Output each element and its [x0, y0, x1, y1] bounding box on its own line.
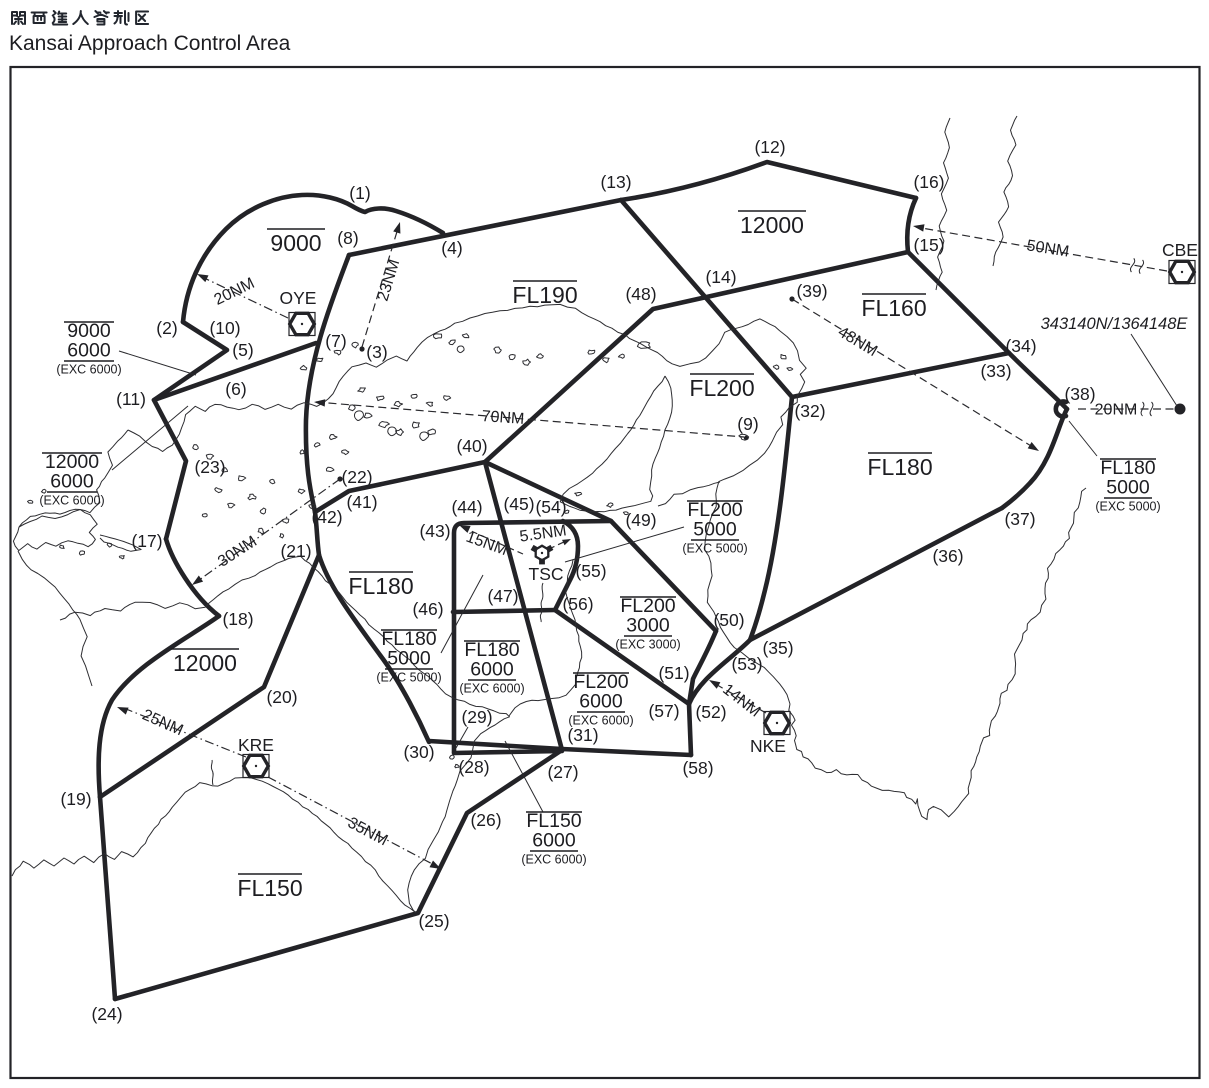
- svg-text:(57): (57): [648, 701, 679, 721]
- svg-text:20NM: 20NM: [1095, 402, 1138, 419]
- svg-text:(2): (2): [156, 318, 177, 338]
- svg-text:(32): (32): [794, 401, 825, 421]
- svg-text:(30): (30): [403, 742, 434, 762]
- svg-text:(28): (28): [458, 757, 489, 777]
- svg-text:Kansai Approach Control Area: Kansai Approach Control Area: [9, 32, 291, 55]
- svg-text:(5): (5): [232, 340, 253, 360]
- svg-text:(13): (13): [600, 172, 631, 192]
- svg-text:(56): (56): [562, 594, 593, 614]
- svg-text:(44): (44): [451, 497, 482, 517]
- svg-text:(11): (11): [116, 389, 146, 409]
- svg-text:(16): (16): [913, 172, 944, 192]
- svg-text:(50): (50): [713, 610, 744, 630]
- svg-text:(58): (58): [682, 758, 713, 778]
- svg-text:(52): (52): [695, 702, 726, 722]
- svg-text:70NM: 70NM: [481, 408, 525, 428]
- svg-text:(7): (7): [325, 331, 346, 351]
- svg-text:(14): (14): [705, 267, 736, 287]
- svg-text:(19): (19): [60, 789, 91, 809]
- svg-text:(43): (43): [419, 521, 450, 541]
- svg-text:(EXC 6000): (EXC 6000): [521, 853, 586, 867]
- svg-text:(9): (9): [737, 414, 758, 434]
- svg-text:6000: 6000: [67, 340, 111, 362]
- svg-text:(24): (24): [91, 1004, 122, 1024]
- svg-text:(12): (12): [754, 137, 785, 157]
- svg-text:6000: 6000: [50, 471, 94, 493]
- svg-text:(EXC 6000): (EXC 6000): [568, 714, 633, 728]
- svg-text:FL160: FL160: [861, 295, 926, 321]
- svg-text:(23): (23): [194, 457, 225, 477]
- svg-text:(55): (55): [575, 561, 606, 581]
- svg-text:3000: 3000: [626, 615, 670, 637]
- svg-text:(37): (37): [1004, 509, 1035, 529]
- svg-text:343140N/1364148E: 343140N/1364148E: [1041, 315, 1189, 333]
- svg-text:(39): (39): [796, 281, 827, 301]
- svg-text:(54): (54): [535, 497, 566, 517]
- svg-text:(22): (22): [341, 467, 372, 487]
- svg-text:(33): (33): [980, 361, 1011, 381]
- svg-text:(4): (4): [441, 238, 462, 258]
- svg-text:FL180: FL180: [867, 454, 932, 480]
- svg-text:(EXC 5000): (EXC 5000): [682, 542, 747, 556]
- svg-text:12000: 12000: [740, 212, 804, 238]
- svg-text:(27): (27): [547, 762, 578, 782]
- svg-text:5000: 5000: [387, 648, 431, 670]
- svg-text:(EXC 6000): (EXC 6000): [459, 682, 524, 696]
- svg-text:(EXC 5000): (EXC 5000): [376, 671, 441, 685]
- svg-text:9000: 9000: [270, 230, 321, 256]
- svg-text:(26): (26): [470, 810, 501, 830]
- svg-text:(51): (51): [658, 663, 689, 683]
- svg-text:(18): (18): [222, 609, 253, 629]
- svg-text:(34): (34): [1005, 336, 1036, 356]
- svg-text:6000: 6000: [470, 659, 514, 681]
- svg-text:5000: 5000: [693, 519, 737, 541]
- svg-text:FL190: FL190: [512, 282, 577, 308]
- svg-text:(36): (36): [932, 546, 963, 566]
- svg-text:(15): (15): [913, 235, 944, 255]
- svg-text:CBE: CBE: [1162, 240, 1198, 260]
- svg-text:(45): (45): [503, 494, 534, 514]
- svg-text:FL150: FL150: [237, 875, 302, 901]
- svg-text:(EXC 6000): (EXC 6000): [39, 494, 104, 508]
- svg-text:(42): (42): [311, 507, 342, 527]
- svg-text:(21): (21): [280, 541, 311, 561]
- svg-text:5000: 5000: [1106, 477, 1150, 499]
- svg-text:6000: 6000: [532, 830, 576, 852]
- svg-text:(25): (25): [418, 911, 449, 931]
- svg-text:(48): (48): [625, 284, 656, 304]
- svg-text:(20): (20): [266, 687, 297, 707]
- svg-text:(46): (46): [412, 599, 443, 619]
- svg-text:(29): (29): [461, 707, 492, 727]
- svg-text:(17): (17): [131, 531, 162, 551]
- svg-text:(31): (31): [567, 725, 598, 745]
- svg-text:6000: 6000: [579, 691, 623, 713]
- svg-text:OYE: OYE: [280, 288, 317, 308]
- svg-text:12000: 12000: [173, 650, 237, 676]
- svg-text:(35): (35): [762, 638, 793, 658]
- svg-text:(40): (40): [456, 436, 487, 456]
- svg-text:(47): (47): [487, 586, 518, 606]
- svg-text:(1): (1): [349, 183, 370, 203]
- svg-text:(EXC 3000): (EXC 3000): [615, 638, 680, 652]
- svg-text:(41): (41): [346, 492, 377, 512]
- svg-text:(38): (38): [1064, 384, 1095, 404]
- svg-text:(3): (3): [366, 342, 387, 362]
- svg-text:(10): (10): [209, 318, 240, 338]
- svg-text:(EXC 6000): (EXC 6000): [56, 363, 121, 377]
- svg-text:(6): (6): [225, 379, 246, 399]
- svg-text:(49): (49): [625, 510, 656, 530]
- svg-text:(53): (53): [731, 654, 762, 674]
- svg-text:(EXC 5000): (EXC 5000): [1095, 500, 1160, 514]
- svg-text:NKE: NKE: [750, 736, 786, 756]
- svg-text:FL200: FL200: [689, 375, 754, 401]
- svg-text:(8): (8): [337, 228, 358, 248]
- svg-text:KRE: KRE: [238, 735, 274, 755]
- svg-text:TSC: TSC: [529, 564, 564, 584]
- svg-text:FL180: FL180: [348, 573, 413, 599]
